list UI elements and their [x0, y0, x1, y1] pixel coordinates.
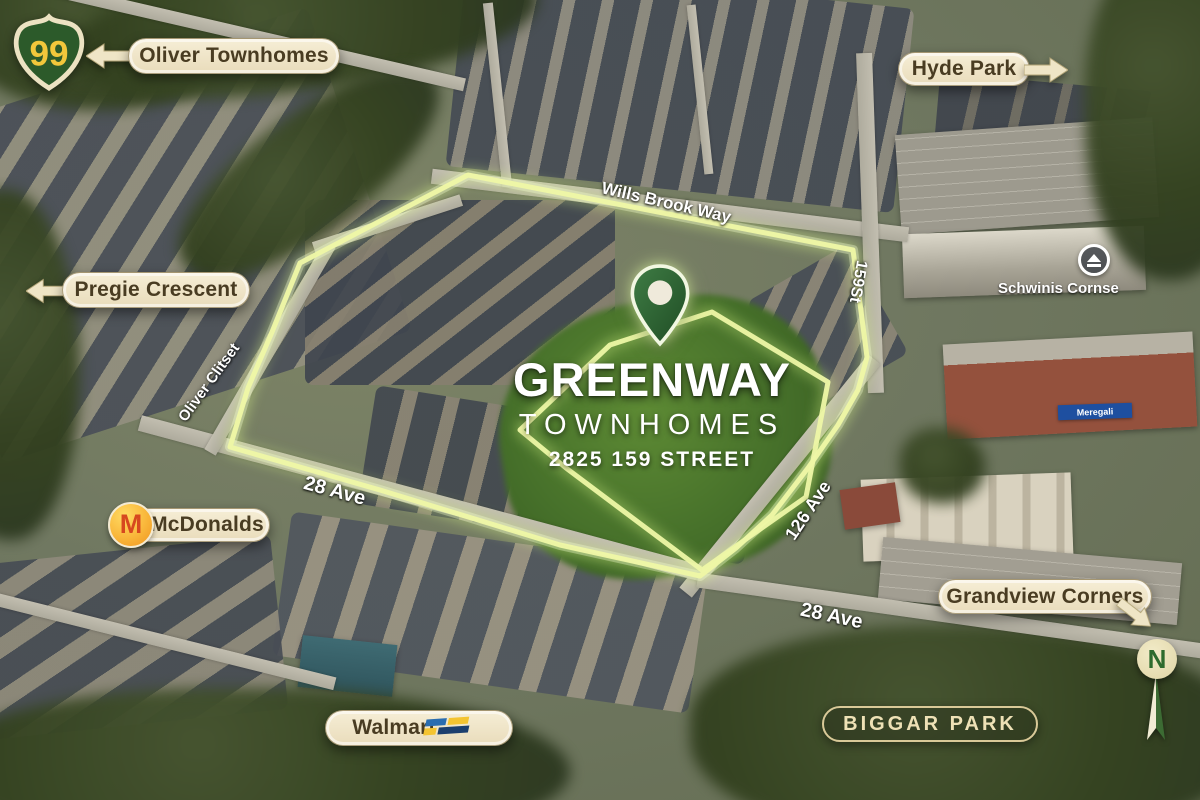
mcdonalds-logo-icon: M	[108, 502, 154, 548]
poi-meregali-sign: Meregali	[1058, 403, 1132, 421]
project-address: 2825 159 STREET	[452, 448, 852, 472]
compass-north-badge: N	[1137, 639, 1177, 679]
label-biggar-park-text: BIGGAR PARK	[843, 713, 1017, 736]
label-hyde-park-text: Hyde Park	[912, 57, 1017, 81]
location-pin-icon	[627, 262, 693, 350]
highway-99-shield: 99	[10, 10, 88, 94]
label-hyde-park: Hyde Park	[898, 52, 1030, 86]
walmart-flag-icon	[423, 716, 472, 737]
project-subtitle: TOWNHOMES	[452, 409, 852, 442]
label-biggar-park: BIGGAR PARK	[822, 706, 1038, 742]
label-grandview-corners-text: Grandview Corners	[946, 585, 1143, 609]
label-pregie-crescent: Pregie Crescent	[62, 272, 250, 308]
schwinis-building-icon	[1078, 244, 1110, 276]
poi-schwinis-cornse: Schwinis Cornse	[998, 280, 1119, 297]
highway-99-number: 99	[29, 35, 68, 74]
label-mcdonalds-text: McDonalds	[150, 513, 264, 537]
project-name: GREENWAY	[452, 352, 852, 407]
project-title-block: GREENWAY TOWNHOMES 2825 159 STREET	[452, 352, 852, 472]
oliver-townhomes-arrow-icon	[86, 42, 134, 70]
compass-needle-icon	[1143, 672, 1169, 746]
label-oliver-townhomes: Oliver Townhomes	[128, 38, 340, 74]
label-pregie-crescent-text: Pregie Crescent	[75, 278, 238, 302]
compass-north-letter: N	[1148, 644, 1167, 675]
aerial-map: GREENWAY TOWNHOMES 2825 159 STREET 99 Ol…	[0, 0, 1200, 800]
hyde-park-arrow-icon	[1024, 57, 1068, 83]
label-oliver-townhomes-text: Oliver Townhomes	[139, 44, 329, 68]
label-walmart: Walmart	[325, 710, 513, 746]
